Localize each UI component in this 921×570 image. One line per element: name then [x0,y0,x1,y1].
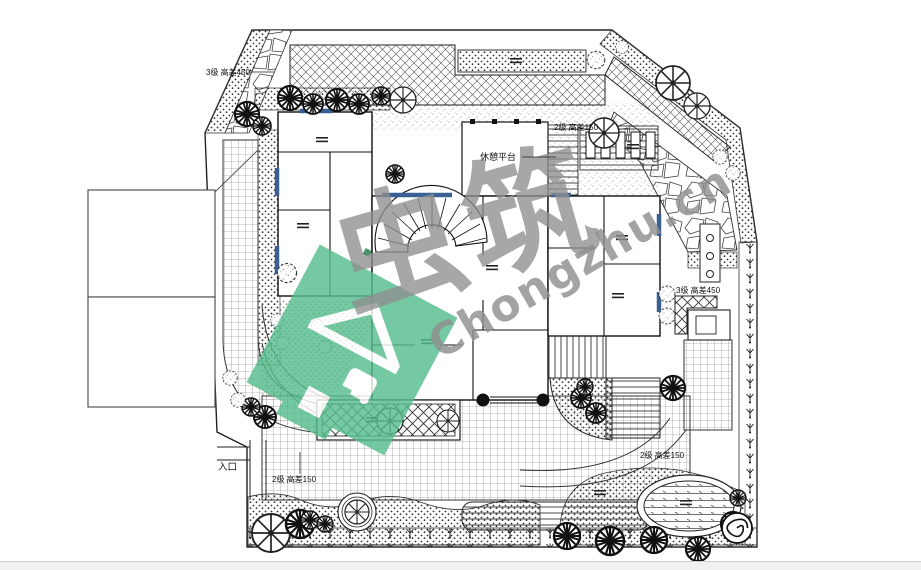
tree-icon [303,94,323,114]
tree-icon [661,376,685,400]
tree-icon [722,513,752,543]
label-steps-bottom-right: 2级 高差150 [640,450,685,460]
tree-icon [656,66,690,100]
label-steps-bottom-left: 2级 高差150 [272,474,317,484]
tree-icon [641,527,667,553]
tree-icon [349,94,369,114]
label-steps-top-left: 3级 高差450 [206,67,251,77]
tree-icon [686,537,710,561]
label-steps-deck: 2级 高差150 [554,122,599,132]
shrub-icon [277,263,296,282]
tree-icon [252,514,290,552]
tree-icon [390,87,416,113]
tree-icon [317,516,333,532]
tree-icon [326,89,348,111]
wheel-motif-icon [437,410,459,432]
tree-icon [730,490,746,506]
tree-icon [253,117,271,135]
site-plan-drawing: 虫筑 Chongzhu.cn 3级 高差450 2级 高差150 3级 高差45… [0,0,921,570]
window-bottom-bar [0,561,921,570]
shrub-icon [616,41,629,54]
label-rest-platform: 休憩平台 [480,151,516,162]
tree-icon [596,527,624,555]
label-steps-right: 3级 高差450 [676,285,721,295]
label-entrance: 入口 [218,462,237,473]
tree-icon [345,500,369,524]
tree-icon [554,523,580,549]
shrub-icon [231,393,245,407]
tree-icon [372,87,390,105]
tree-icon [684,93,710,119]
shrub-icon [223,371,237,385]
tree-icon [577,379,593,395]
tree-icon [278,86,302,110]
shrub-icon [659,286,675,302]
tree-icon [301,511,319,529]
site-plan-canvas: 虫筑 Chongzhu.cn 3级 高差450 2级 高差150 3级 高差45… [0,0,921,570]
shrub-icon [587,51,605,69]
tree-icon [586,403,606,423]
shrub-icon [659,308,675,324]
